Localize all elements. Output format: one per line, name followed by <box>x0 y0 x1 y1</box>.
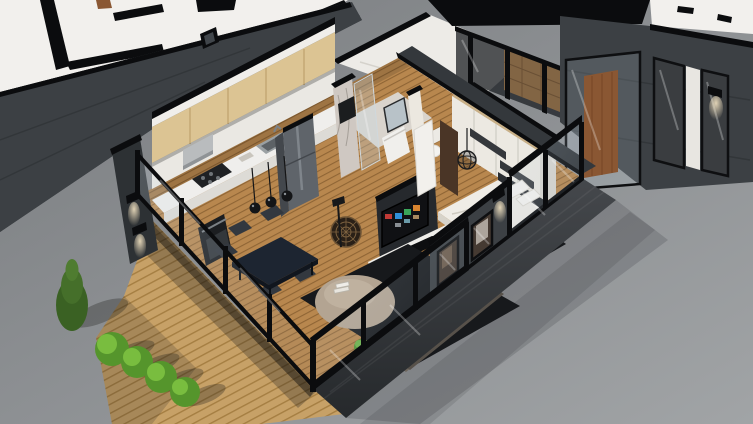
glass-mullion <box>464 222 469 270</box>
tv-tile <box>404 219 410 223</box>
pendant-bulb <box>266 197 277 208</box>
tv-tile <box>413 215 419 219</box>
glass-mullion <box>361 302 366 350</box>
window-glass <box>702 70 728 176</box>
open-door-leaf <box>414 120 436 196</box>
lamp-sphere <box>458 151 476 169</box>
bulb-highlight <box>284 193 286 195</box>
shower-frame <box>542 60 547 114</box>
glass-mullion <box>413 262 418 310</box>
pendant-bulb <box>282 191 293 202</box>
glass-corner-post <box>310 340 316 392</box>
neighbor-wall <box>196 0 236 12</box>
neighbor-door <box>96 0 112 9</box>
light-glow <box>709 96 723 120</box>
pendant-bulb <box>250 203 261 214</box>
rattan-decor <box>331 217 361 247</box>
bulb-highlight <box>268 199 270 201</box>
render-canvas <box>0 0 753 424</box>
doorway-dark <box>440 120 458 196</box>
glass-mullion <box>507 177 512 235</box>
glass-mullion <box>543 150 548 208</box>
glass-mullion <box>135 150 140 198</box>
bush-highlight <box>147 363 165 381</box>
tv-tile <box>385 214 392 219</box>
tv-tile <box>413 205 420 211</box>
tv-tile <box>404 209 411 215</box>
white-column <box>686 66 700 170</box>
tv-tile <box>395 213 402 219</box>
light-glow <box>128 202 140 226</box>
bulb-highlight <box>252 205 254 207</box>
light-glow <box>494 201 506 223</box>
bush-highlight <box>123 348 141 366</box>
glass-mullion <box>223 246 228 294</box>
bush-highlight <box>97 334 117 354</box>
window-glass <box>654 58 684 168</box>
bush-highlight <box>172 379 188 395</box>
light-glow <box>134 234 146 258</box>
floorplan-render <box>0 0 753 424</box>
shower-frame <box>505 46 510 100</box>
glass-mullion <box>579 122 584 180</box>
tv-tile <box>395 223 401 227</box>
cut-wall-top <box>428 0 650 26</box>
